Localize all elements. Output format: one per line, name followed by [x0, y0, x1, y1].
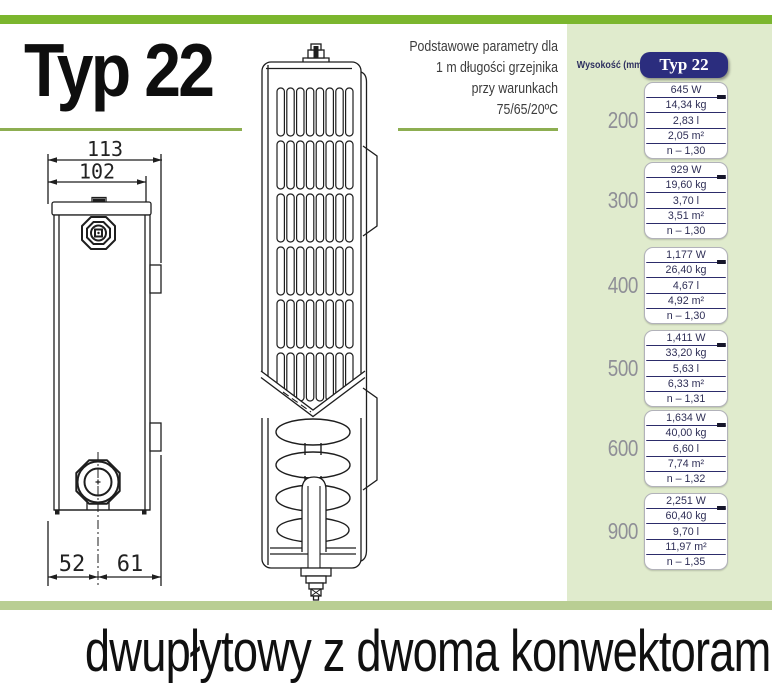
table-cell: 5,63 l: [646, 360, 726, 375]
note-line: Podstawowe parametry dla: [364, 37, 558, 58]
table-cell: 2,251 W: [646, 494, 726, 508]
dim-102: 102: [79, 160, 115, 184]
table-cell: n – 1,30: [646, 223, 726, 238]
dim-113: 113: [87, 140, 123, 161]
table-cell: 4,67 l: [646, 277, 726, 292]
height-label: 600: [586, 435, 638, 462]
table-group-600: 1,634 W 40,00 kg 6,60 l 7,74 m² n – 1,32: [644, 410, 728, 487]
dim-52: 52: [59, 552, 86, 577]
table-group-400: 1,177 W 26,40 kg 4,67 l 4,92 m² n – 1,30: [644, 247, 728, 324]
type-header-badge: Typ 22: [640, 52, 728, 78]
table-group-500: 1,411 W 33,20 kg 5,63 l 6,33 m² n – 1,31: [644, 330, 728, 407]
side-view-lines: [260, 44, 377, 600]
table-cell: 3,70 l: [646, 192, 726, 207]
note-line: przy warunkach: [364, 79, 558, 100]
table-cell: 1,634 W: [646, 411, 726, 425]
front-view-drawing: 113 102 52 61: [36, 140, 182, 596]
radiator-spec-sheet: Typ 22 Podstawowe parametry dla 1 m dług…: [0, 0, 772, 699]
table-cell: 6,33 m²: [646, 376, 726, 391]
bottom-caption: dwupłytowy z dwoma konwektorami: [85, 620, 687, 684]
table-cell: 2,83 l: [646, 112, 726, 127]
table-cell: n – 1,35: [646, 554, 726, 569]
table-cell: 7,74 m²: [646, 456, 726, 471]
table-cell: 645 W: [646, 83, 726, 97]
divider-right: [398, 128, 558, 131]
side-view-drawing: [246, 38, 392, 612]
table-cell: 11,97 m²: [646, 539, 726, 554]
height-label: 500: [586, 355, 638, 382]
height-label: 200: [586, 107, 638, 134]
table-cell: n – 1,30: [646, 143, 726, 158]
table-cell: 19,60 kg: [646, 177, 726, 192]
divider-left: [0, 128, 242, 131]
table-cell: n – 1,32: [646, 471, 726, 486]
height-label: 400: [586, 272, 638, 299]
table-cell: 929 W: [646, 163, 726, 177]
page-title: Typ 22: [24, 30, 212, 110]
drain-plug: [301, 568, 331, 600]
table-group-200: 645 W 14,34 kg 2,83 l 2,05 m² n – 1,30: [644, 82, 728, 159]
note-line: 75/65/20ºC: [364, 100, 558, 121]
table-cell: 6,60 l: [646, 440, 726, 455]
table-cell: 26,40 kg: [646, 262, 726, 277]
height-label: 300: [586, 187, 638, 214]
height-column-header: Wysokość (mm): [577, 59, 638, 71]
table-cell: 40,00 kg: [646, 425, 726, 440]
dim-61: 61: [117, 552, 144, 577]
table-cell: 3,51 m²: [646, 208, 726, 223]
table-group-300: 929 W 19,60 kg 3,70 l 3,51 m² n – 1,30: [644, 162, 728, 239]
table-cell: n – 1,30: [646, 308, 726, 323]
table-group-900: 2,251 W 60,40 kg 9,70 l 11,97 m² n – 1,3…: [644, 493, 728, 570]
table-cell: 2,05 m²: [646, 128, 726, 143]
note-line: 1 m długości grzejnika: [364, 58, 558, 79]
table-cell: 4,92 m²: [646, 293, 726, 308]
top-green-bar: [0, 15, 772, 24]
table-cell: 33,20 kg: [646, 345, 726, 360]
table-cell: 1,411 W: [646, 331, 726, 345]
table-cell: 14,34 kg: [646, 97, 726, 112]
table-cell: 9,70 l: [646, 523, 726, 538]
top-valve: [82, 217, 115, 249]
table-cell: 1,177 W: [646, 248, 726, 262]
conditions-note: Podstawowe parametry dla 1 m długości gr…: [364, 37, 558, 121]
table-cell: n – 1,31: [646, 391, 726, 406]
table-cell: 60,40 kg: [646, 508, 726, 523]
front-view-lines: [48, 154, 162, 586]
height-label: 900: [586, 518, 638, 545]
